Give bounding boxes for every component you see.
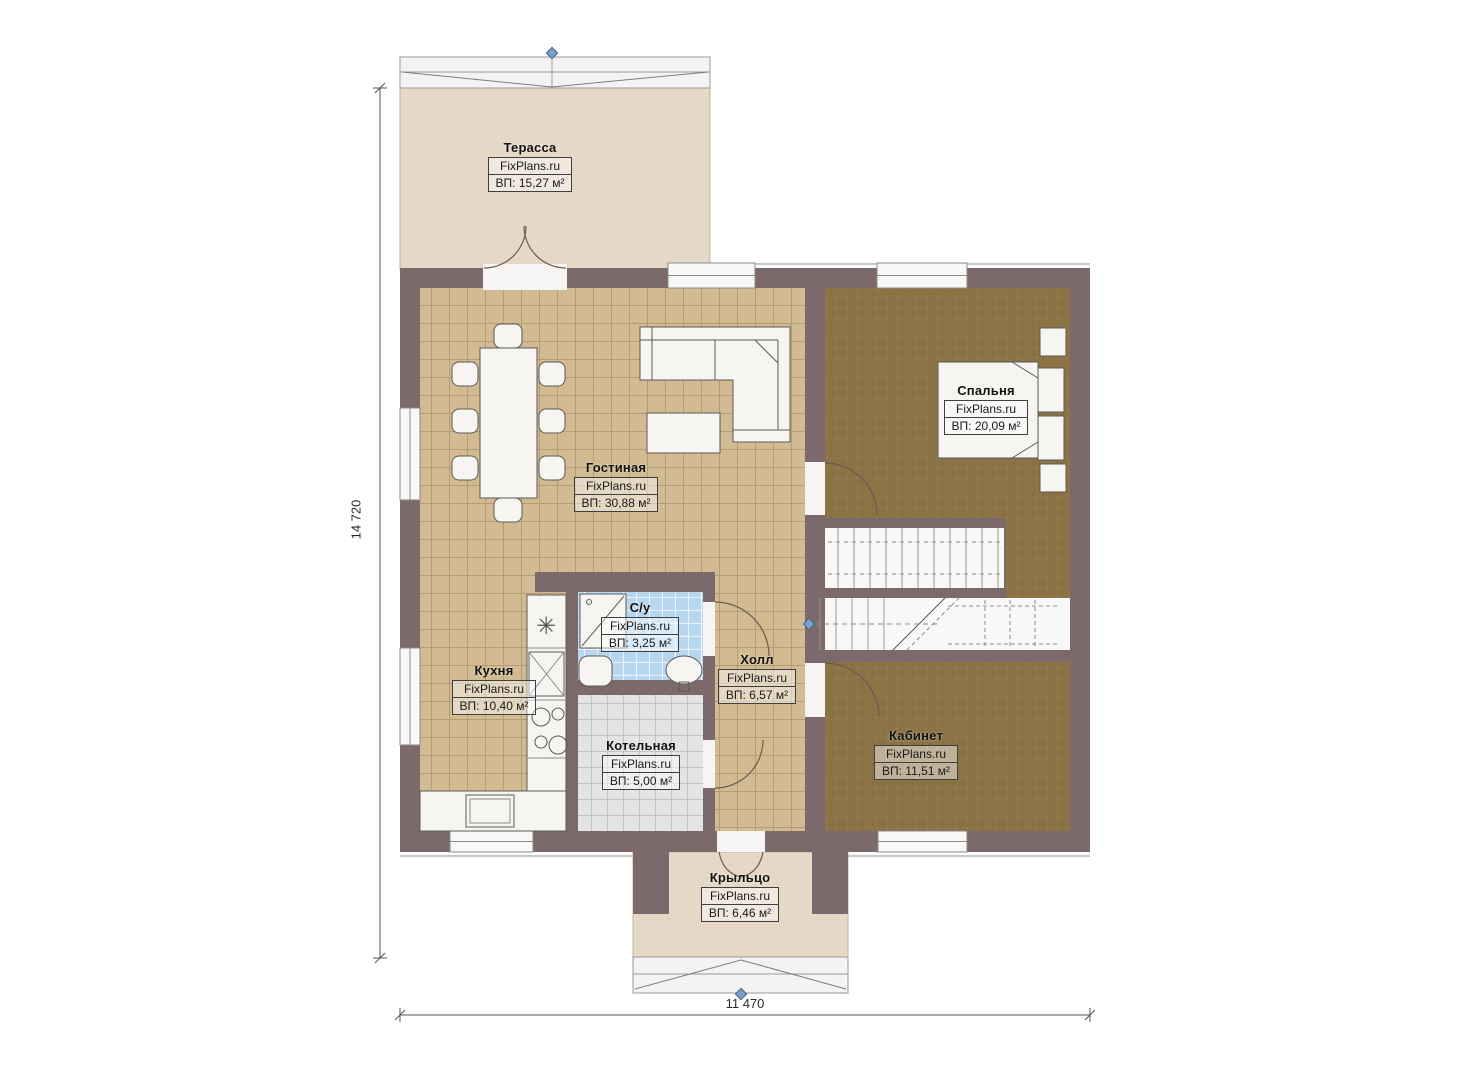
stairs-upper-flight (825, 528, 1005, 588)
dining-table (480, 348, 537, 498)
porch-wall-stub-right (812, 852, 848, 914)
room-label-boiler: Котельная FixPlans.ru ВП: 5,00 м² (566, 738, 716, 790)
window-living-top (668, 263, 755, 288)
room-info-box: FixPlans.ru ВП: 6,57 м² (718, 669, 796, 704)
chair (539, 409, 565, 433)
area-text: ВП: 20,09 м² (945, 418, 1028, 434)
chair (539, 362, 565, 386)
chair (452, 409, 478, 433)
window-kitchen-bottom (450, 831, 533, 852)
room-info-box: FixPlans.ru ВП: 15,27 м² (488, 157, 573, 192)
chair (494, 498, 522, 522)
room-label-kitchen: Кухня FixPlans.ru ВП: 10,40 м² (419, 663, 569, 715)
brand-text: FixPlans.ru (453, 681, 536, 698)
room-name: Спальня (957, 383, 1015, 398)
porch-roof (633, 957, 848, 993)
window-bedroom-top (877, 263, 967, 288)
room-label-porch: Крыльцо FixPlans.ru ВП: 6,46 м² (665, 870, 815, 922)
room-label-hall: Холл FixPlans.ru ВП: 6,57 м² (682, 652, 832, 704)
dimension-height-label: 14 720 (349, 470, 364, 570)
area-text: ВП: 30,88 м² (575, 495, 658, 511)
window-kitchen-left (400, 648, 420, 745)
area-text: ВП: 5,00 м² (603, 773, 679, 789)
coffee-table (647, 413, 720, 453)
room-name: Крыльцо (710, 870, 771, 885)
room-label-bedroom: Спальня FixPlans.ru ВП: 20,09 м² (911, 383, 1061, 435)
area-text: ВП: 11,51 м² (875, 763, 957, 779)
brand-text: FixPlans.ru (575, 478, 658, 495)
floor-stair-side (1005, 522, 1070, 598)
floor-plan-canvas: ✳ Терасса FixPlans.ru ВП: 15,27 м² Гости… (0, 0, 1474, 1080)
chair (452, 456, 478, 480)
porch-wall-stub-left (633, 852, 669, 914)
room-info-box: FixPlans.ru ВП: 6,46 м² (701, 887, 779, 922)
room-name: Холл (740, 652, 773, 667)
room-name: Терасса (504, 140, 557, 155)
dimension-width-label: 11 470 (700, 996, 790, 1011)
terrace-roof (400, 57, 710, 88)
window-office-bottom (878, 831, 967, 852)
brand-text: FixPlans.ru (489, 158, 572, 175)
room-name: С/у (630, 600, 651, 615)
chair (452, 362, 478, 386)
area-text: ВП: 6,57 м² (719, 687, 795, 703)
room-info-box: FixPlans.ru ВП: 11,51 м² (874, 745, 958, 780)
room-info-box: FixPlans.ru ВП: 5,00 м² (602, 755, 680, 790)
kitchen-counter-bottom (420, 791, 566, 831)
area-text: ВП: 15,27 м² (489, 175, 572, 191)
area-text: ВП: 6,46 м² (702, 905, 778, 921)
room-label-office: Кабинет FixPlans.ru ВП: 11,51 м² (841, 728, 991, 780)
room-info-box: FixPlans.ru ВП: 20,09 м² (944, 400, 1029, 435)
brand-text: FixPlans.ru (945, 401, 1028, 418)
sink-icon: ✳ (536, 612, 556, 640)
window-living-left (400, 408, 420, 500)
brand-text: FixPlans.ru (875, 746, 957, 763)
room-name: Гостиная (586, 460, 646, 475)
chair (494, 324, 522, 348)
room-name: Кабинет (889, 728, 943, 743)
brand-text: FixPlans.ru (603, 756, 679, 773)
area-text: ВП: 3,25 м² (602, 635, 678, 651)
room-info-box: FixPlans.ru ВП: 3,25 м² (601, 617, 679, 652)
washer (579, 656, 612, 686)
area-text: ВП: 10,40 м² (453, 698, 536, 714)
nightstand (1040, 464, 1066, 492)
room-info-box: FixPlans.ru ВП: 30,88 м² (574, 477, 659, 512)
room-label-terrace: Терасса FixPlans.ru ВП: 15,27 м² (455, 140, 605, 192)
room-name: Кухня (475, 663, 514, 678)
room-name: Котельная (606, 738, 676, 753)
brand-text: FixPlans.ru (719, 670, 795, 687)
room-label-bathroom: С/у FixPlans.ru ВП: 3,25 м² (565, 600, 715, 652)
nightstand (1040, 328, 1066, 356)
room-info-box: FixPlans.ru ВП: 10,40 м² (452, 680, 537, 715)
room-label-living: Гостиная FixPlans.ru ВП: 30,88 м² (541, 460, 691, 512)
brand-text: FixPlans.ru (602, 618, 678, 635)
brand-text: FixPlans.ru (702, 888, 778, 905)
